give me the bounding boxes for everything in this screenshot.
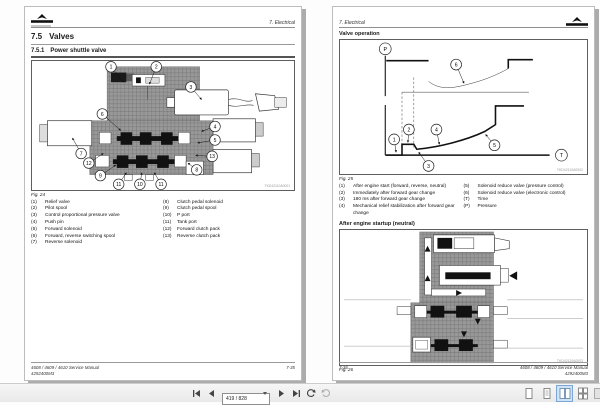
svg-text:1: 1	[110, 64, 113, 70]
toolbar-overflow-icon[interactable]	[594, 388, 600, 399]
drawing-id: TKD42110A0002	[557, 168, 583, 172]
two-page-view-icon	[559, 387, 571, 400]
next-view-button[interactable]	[320, 387, 332, 399]
next-page-button[interactable]	[275, 387, 287, 399]
svg-text:7: 7	[80, 151, 83, 157]
legend-item: (13)Reverse clutch pack	[163, 234, 295, 241]
first-page-button[interactable]	[190, 387, 202, 399]
chart-callout-2: 2	[403, 124, 414, 142]
footer-rule	[31, 362, 295, 363]
legend-item: (4)Mechanical relief stabilization after…	[339, 204, 464, 218]
chart-callout-1: 1	[389, 134, 400, 152]
brand-wordmark	[31, 25, 51, 27]
legend-item: (12)Forward clutch pack	[163, 227, 295, 234]
legend-item: (11)Tank port	[163, 220, 295, 227]
svg-text:3: 3	[190, 84, 193, 90]
publication-code: 4292400M3	[520, 371, 588, 377]
svg-text:P: P	[383, 47, 387, 53]
callout-11b: 11	[154, 172, 166, 189]
legend-column-right: (8)Clutch pedal solenoid(9)Clutch pedal …	[163, 200, 295, 248]
running-header: 7. Electrical	[269, 20, 295, 27]
svg-text:9: 9	[99, 173, 102, 179]
footer-rule	[339, 362, 588, 363]
figure-24-legend: (1)Relief valve(2)Pilot spool(3)Control …	[31, 200, 295, 248]
last-page-icon	[292, 389, 301, 398]
chart-callout-5: 5	[486, 134, 500, 150]
two-page-view-button[interactable]	[557, 386, 572, 401]
divider	[31, 56, 295, 58]
svg-text:1: 1	[393, 137, 396, 143]
publication-code: 4292400M3	[31, 371, 99, 377]
page-input-dropdown-icon[interactable]	[261, 387, 269, 399]
figure-26-box: TKD42110A0003	[339, 229, 588, 366]
scrolling-view-icon	[541, 387, 553, 400]
chart-callout-6: 6	[451, 59, 464, 83]
manual-title: 4608 / 4609 / 4610 Service Manual	[31, 365, 99, 371]
callout-10: 10	[135, 172, 146, 189]
previous-view-button[interactable]	[305, 387, 317, 399]
section-title: Valves	[49, 32, 74, 41]
svg-text:5: 5	[214, 137, 217, 143]
previous-page-button[interactable]	[205, 387, 217, 399]
svg-text:2: 2	[155, 64, 158, 70]
first-page-icon	[192, 389, 201, 398]
scrolling-view-button[interactable]	[539, 386, 554, 401]
svg-text:4: 4	[435, 127, 438, 133]
legend-item: (5)Solenoid reduce valve (pressure contr…	[464, 184, 589, 191]
figure-24-box: 1 2 3 6 4 5 7 12 13 8 9 11 10 11 TKD4211…	[31, 60, 295, 191]
page-header: 7. Electrical	[339, 14, 588, 27]
heading-after-startup: After engine startup (neutral)	[339, 221, 588, 227]
valve-operation-chart: P T 1	[340, 40, 587, 174]
brand-logo	[566, 17, 588, 27]
subsection-heading: 7.5.1 Power shuttle valve	[31, 48, 295, 54]
subsection-number: 7.5.1	[31, 48, 44, 54]
svg-text:11: 11	[158, 182, 163, 188]
legend-item: (P)Pressure	[464, 204, 589, 211]
svg-text:3: 3	[427, 164, 430, 170]
svg-text:8: 8	[195, 167, 198, 173]
svg-text:5: 5	[493, 143, 496, 149]
brand-logo-icon	[31, 14, 53, 24]
legend-item: (1)After engine start (forward, reverse,…	[339, 184, 464, 191]
svg-text:10: 10	[137, 182, 143, 188]
next-page-icon	[277, 389, 286, 398]
two-page-scrolling-view-button[interactable]	[575, 386, 590, 401]
manual-title: 4608 / 4609 / 4610 Service Manual	[520, 365, 588, 371]
running-header: 7. Electrical	[339, 20, 365, 27]
page-navigation	[190, 384, 332, 402]
single-page-view-icon	[523, 387, 535, 400]
svg-text:4: 4	[214, 124, 217, 130]
x-axis: T	[385, 149, 567, 161]
legend-column-left: (1)After engine start (forward, reverse,…	[339, 184, 464, 218]
svg-text:11: 11	[116, 182, 121, 188]
power-shuttle-valve-diagram: 1 2 3 6 4 5 7 12 13 8 9 11 10 11 TKD4211…	[32, 61, 294, 190]
page-header: 7. Electrical	[31, 14, 295, 27]
page-input-wrap	[222, 387, 270, 399]
section-number: 7.5	[31, 32, 42, 41]
valve-cross-section-diagram: TKD42110A0003	[340, 230, 587, 365]
subsection-title: Power shuttle valve	[50, 48, 106, 54]
legend-item: (4)Push pin	[31, 220, 163, 227]
header-rule	[31, 27, 295, 28]
section-heading: 7.5 Valves	[31, 32, 295, 41]
brand-logo	[31, 14, 53, 27]
page-number: 7-36	[339, 365, 348, 377]
drawing-id: TKD42110A0001	[265, 184, 291, 188]
page-footer: 4608 / 4609 / 4610 Service Manual 429240…	[31, 362, 295, 377]
page-number: 7-35	[286, 365, 295, 377]
svg-text:2: 2	[407, 127, 410, 133]
manual-page-left: 7. Electrical 7.5 Valves 7.5.1 Power shu…	[24, 6, 302, 381]
legend-column-right: (5)Solenoid reduce valve (pressure contr…	[464, 184, 589, 218]
page-footer: 7-36 4608 / 4609 / 4610 Service Manual 4…	[339, 362, 588, 377]
figure-25-box: P T 1	[339, 39, 588, 175]
page-display-modes	[521, 384, 590, 402]
svg-text:12: 12	[86, 161, 92, 167]
heading-valve-operation: Valve operation	[339, 31, 588, 37]
viewer-toolbar	[0, 383, 600, 402]
divider	[31, 44, 295, 45]
two-page-scrolling-view-icon	[577, 387, 589, 400]
chart-callout-4: 4	[431, 124, 442, 144]
manual-page-right: 7. Electrical Valve operation	[332, 6, 595, 381]
figure-caption: Fig. 25	[339, 176, 588, 181]
callout-11: 11	[113, 172, 126, 189]
previous-view-icon	[306, 388, 316, 398]
legend-column-left: (1)Relief valve(2)Pilot spool(3)Control …	[31, 200, 163, 248]
next-view-icon	[321, 388, 331, 398]
figure-25-legend: (1)After engine start (forward, reverse,…	[339, 184, 588, 218]
header-rule	[339, 27, 588, 28]
previous-page-icon	[207, 389, 216, 398]
legend-item: (5)Forward solenoid	[31, 227, 163, 234]
svg-text:6: 6	[101, 111, 104, 117]
svg-text:6: 6	[455, 62, 458, 68]
single-page-view-button[interactable]	[521, 386, 536, 401]
figure-caption: Fig. 24	[31, 192, 295, 197]
svg-text:13: 13	[209, 154, 215, 160]
brand-logo-icon	[566, 17, 588, 27]
legend-item: (7)Reverse solenoid	[31, 240, 163, 247]
last-page-button[interactable]	[290, 387, 302, 399]
